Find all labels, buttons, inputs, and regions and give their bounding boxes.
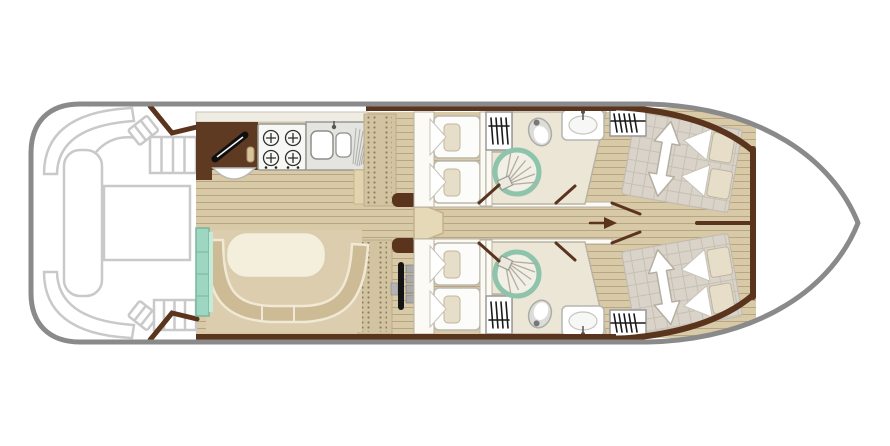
deck-table	[104, 186, 190, 260]
cabin-bathroom-wall	[480, 112, 486, 206]
boat-floor-plan-svg	[0, 0, 890, 446]
boarding-steps-port	[150, 137, 196, 173]
double-sink-icon	[306, 121, 368, 170]
steps-dots	[377, 242, 387, 332]
washbasin-icon	[562, 306, 604, 336]
single-bed	[430, 116, 480, 158]
wardrobe-icon	[486, 112, 512, 150]
cabin-bathroom-wall	[480, 240, 486, 334]
teal-sideboard	[196, 228, 213, 316]
steps-dots	[366, 116, 376, 204]
pillow	[444, 296, 460, 323]
pillow	[707, 168, 734, 199]
wardrobe-icon	[486, 296, 512, 334]
dinette-table	[226, 232, 326, 278]
shower-icon	[495, 150, 539, 194]
wardrobe-icon	[610, 110, 646, 136]
galley-backsplash	[196, 112, 368, 122]
gas-hob-icon	[258, 124, 306, 170]
helm-seat-base	[391, 283, 398, 295]
boat-floor-plan	[0, 0, 890, 446]
pillow	[444, 251, 460, 278]
saloon-dinette	[196, 228, 368, 332]
pillow	[444, 169, 460, 196]
corridor-step	[414, 207, 443, 239]
single-bed	[430, 288, 480, 330]
steering-wheel	[398, 262, 404, 310]
single-bed	[430, 161, 480, 203]
single-bed	[430, 243, 480, 285]
pillow	[707, 246, 734, 277]
wardrobe-icon	[610, 310, 646, 336]
midship-bathroom-port	[486, 110, 606, 206]
steps-dots	[382, 116, 392, 204]
pillow	[444, 124, 460, 151]
midship-bathroom-starboard	[486, 240, 606, 336]
washbasin-icon	[562, 110, 604, 140]
stern-bench	[64, 150, 102, 296]
shower-icon	[495, 252, 539, 296]
hatch-knob	[247, 147, 254, 162]
